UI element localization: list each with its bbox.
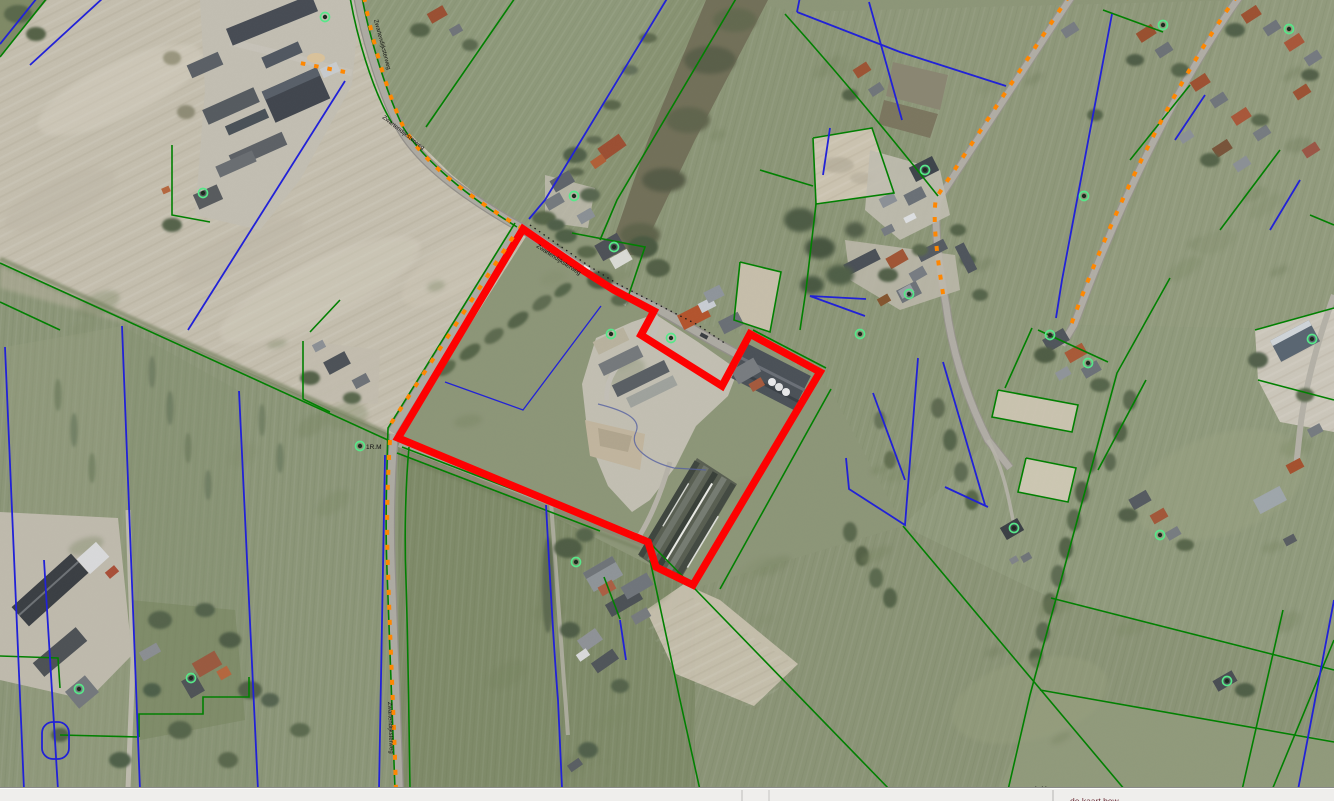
svg-text:1R.M: 1R.M bbox=[366, 444, 382, 451]
svg-text:de kaart bew: de kaart bew bbox=[1070, 796, 1120, 801]
